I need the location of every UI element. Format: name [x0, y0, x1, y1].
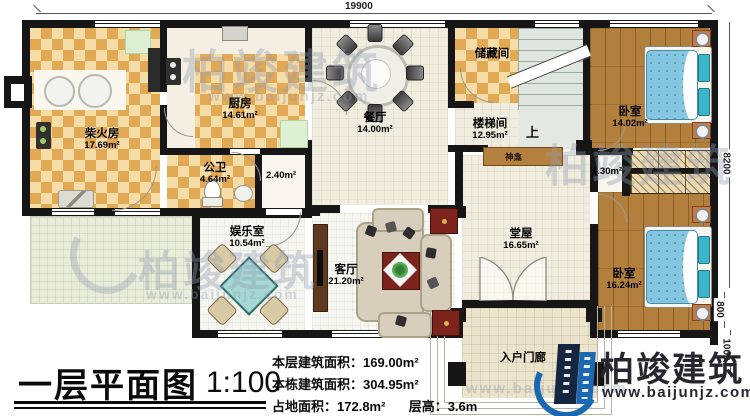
storage-name: 储藏间 [475, 48, 510, 61]
window-bottom-bedroom [618, 330, 680, 338]
firewood-area: 17.69m² [84, 141, 119, 152]
wall-dining-living-a [312, 205, 340, 213]
room-label-hall: 堂屋 16.65m² [486, 228, 556, 252]
room-label-recreation: 娱乐室 10.54m² [212, 226, 282, 250]
sofa-chaise [420, 234, 452, 312]
wall-left [22, 20, 30, 216]
wall-stairhall-bottom [448, 145, 488, 152]
logo-url: www.baijunjz.com [602, 384, 750, 401]
wood-stove-burner-1 [44, 76, 75, 107]
bed-bottom-pillow [698, 270, 710, 298]
title-underline-2 [14, 407, 266, 409]
stat-floor-area-label: 本层建筑面积： [272, 355, 363, 370]
wall-storage-bottom [448, 101, 474, 108]
gas-stove-icon [36, 122, 51, 149]
dim-tick [707, 5, 715, 13]
terrace-floor [30, 216, 194, 304]
stat-building-area-value: 304.95m² [363, 377, 419, 392]
stat-height-label: 层高： [409, 399, 448, 414]
stair-up-label: 上 [526, 122, 539, 141]
green-mat-2 [280, 120, 308, 148]
kitchen-area: 14.61m² [222, 111, 257, 122]
dim-right-label: 8200 [721, 149, 732, 177]
window-top-dining [350, 20, 445, 28]
passage-area-label: 1.30m² [592, 166, 622, 177]
nightstand [692, 304, 711, 321]
hallway-floor [262, 155, 305, 208]
stat-floor-area: 本层建筑面积：169.00m² [272, 352, 419, 371]
bathroom-area: 4.64m² [200, 175, 230, 186]
dining-table-center [361, 59, 391, 89]
wall-closet-left [622, 148, 630, 196]
room-label-bedroom-top: 卧室 14.02m² [598, 106, 662, 130]
toilet-tank [202, 197, 223, 207]
bedroom-bottom-door-gap [590, 192, 598, 224]
hall-area: 16.65m² [503, 241, 538, 252]
stat-floor-area-value: 169.00m² [363, 355, 419, 370]
dim-tick [33, 5, 41, 13]
stat-height-value: 3.6m [448, 399, 478, 414]
page-title: 一层平面图 [18, 358, 198, 407]
room-label-bathroom: 公卫 4.64m² [185, 162, 245, 186]
shrine-label: 神龛 [505, 151, 522, 163]
nightstand [692, 122, 711, 139]
stairwell-area: 12.95m² [472, 131, 507, 142]
side-table-top [430, 208, 458, 234]
window-bottom-firewood-1 [52, 208, 94, 216]
basin-icon [234, 185, 253, 202]
dining-area: 14.00m² [357, 125, 392, 136]
dim-800-label: 800 [714, 298, 725, 321]
bed-top-pillow [698, 88, 710, 116]
logo-building-windows [562, 350, 571, 398]
recreation-area: 10.54m² [229, 239, 264, 250]
logo-block: 柏竣建筑 www.baijunjz.com [534, 340, 750, 416]
wall-closet-divider [630, 168, 710, 173]
sofa-pillow [425, 247, 437, 259]
wall-kitchen-dining-b [305, 140, 312, 218]
stat-building-area: 本栋建筑面积：304.95m² [272, 374, 419, 393]
bed-bottom-mattress [646, 230, 698, 304]
bedroom-bottom-area: 16.24m² [606, 281, 641, 292]
window-top-firewood [95, 20, 160, 28]
room-label-storage: 储藏间 [460, 48, 524, 61]
wall-dining-storage [448, 20, 455, 108]
dining-chair [326, 66, 344, 81]
logo-building-windows [582, 357, 591, 399]
room-label-bedroom-bottom: 卧室 16.24m² [592, 268, 656, 292]
wall-kitchen-dining-a [305, 20, 312, 82]
dining-chair [368, 24, 383, 42]
stat-footprint-value: 172.8m² [337, 399, 385, 414]
dim-top-label: 19900 [342, 1, 376, 12]
wall-bath-hallway [255, 155, 262, 208]
sink-icon [58, 190, 94, 208]
stat-building-area-label: 本栋建筑面积： [272, 377, 363, 392]
dim-line-top [36, 13, 712, 14]
floor-plan-page: 柴火房 17.69m² 厨房 14.61m² 公卫 4.64m² 2.40m² … [0, 0, 750, 416]
range-hood-icon [222, 26, 248, 41]
room-label-stairwell: 楼梯间 12.95m² [458, 118, 522, 142]
shrine-shelf [483, 147, 563, 166]
bed-bottom-pillow [698, 236, 710, 264]
title-underline-1 [14, 401, 266, 404]
dining-chair [406, 66, 424, 81]
chimney-flue [11, 84, 24, 101]
side-table-bottom [432, 310, 460, 336]
room-label-living: 客厅 21.20m² [314, 264, 378, 288]
room-label-firewood: 柴火房 17.69m² [62, 128, 142, 152]
wall-recreation-left [192, 210, 200, 338]
wall-stair-bedroom [583, 20, 590, 155]
wardrobe-bottom [630, 173, 712, 194]
bed-top-pillow [698, 54, 710, 82]
wood-stove-burner-2 [78, 74, 112, 108]
hall-double-door [479, 257, 547, 301]
stat-footprint-height: 占地面积：172.8m² 层高：3.6m [272, 396, 477, 415]
bedroom-top-area: 14.02m² [612, 119, 647, 130]
stat-footprint-label: 占地面积： [272, 399, 337, 414]
hallway-area-label: 2.40m² [266, 170, 296, 181]
living-area: 21.20m² [328, 277, 363, 288]
cooktop-icon [166, 58, 181, 85]
window-bottom-recreation [218, 330, 282, 338]
title-scale: 1:100 [206, 366, 281, 400]
tall-appliance [148, 48, 160, 92]
window-top-stair [535, 20, 579, 28]
window-top-bedroom [610, 20, 698, 28]
sofa-bench-top [372, 208, 424, 232]
plant-icon [392, 262, 408, 278]
room-label-kitchen: 厨房 14.61m² [205, 98, 275, 122]
room-label-dining: 餐厅 14.00m² [340, 112, 410, 136]
nightstand [692, 206, 711, 223]
nightstand [692, 30, 711, 47]
